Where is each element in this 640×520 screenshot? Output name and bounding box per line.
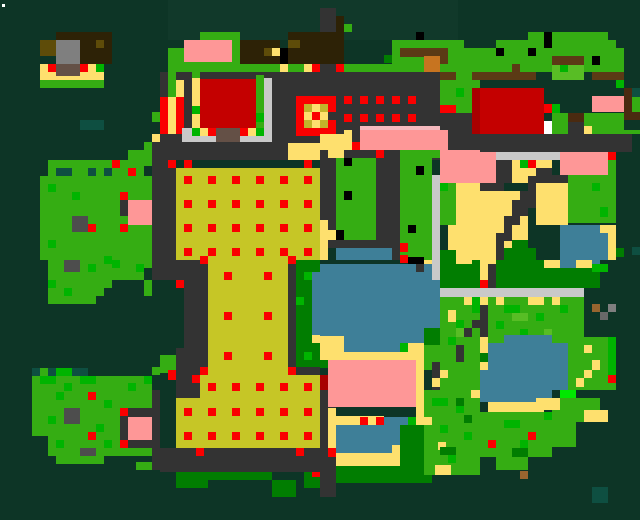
game-map-screen [0,0,640,520]
pixel-town-map [0,0,640,520]
